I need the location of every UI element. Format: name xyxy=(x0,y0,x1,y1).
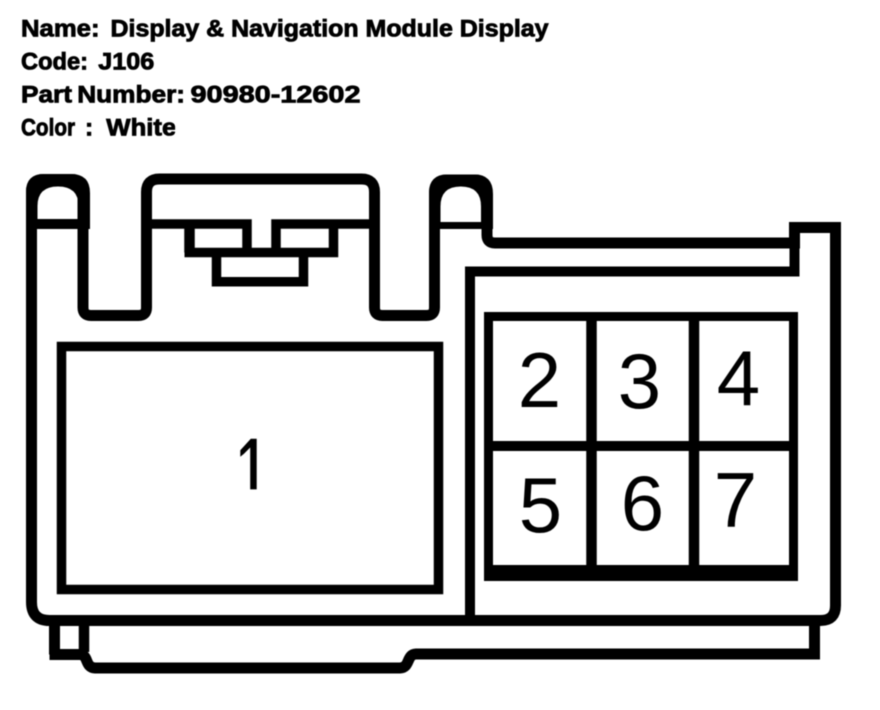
svg-text:2: 2 xyxy=(518,336,561,424)
svg-text:3: 3 xyxy=(618,337,661,425)
svg-text:4: 4 xyxy=(717,334,760,422)
svg-text:Code:J106: Code:J106 xyxy=(21,49,154,76)
svg-text:5: 5 xyxy=(519,461,562,549)
svg-text:6: 6 xyxy=(621,459,664,547)
svg-text:7: 7 xyxy=(714,456,757,544)
svg-text:Part Number:90980-12602: Part Number:90980-12602 xyxy=(21,82,361,109)
